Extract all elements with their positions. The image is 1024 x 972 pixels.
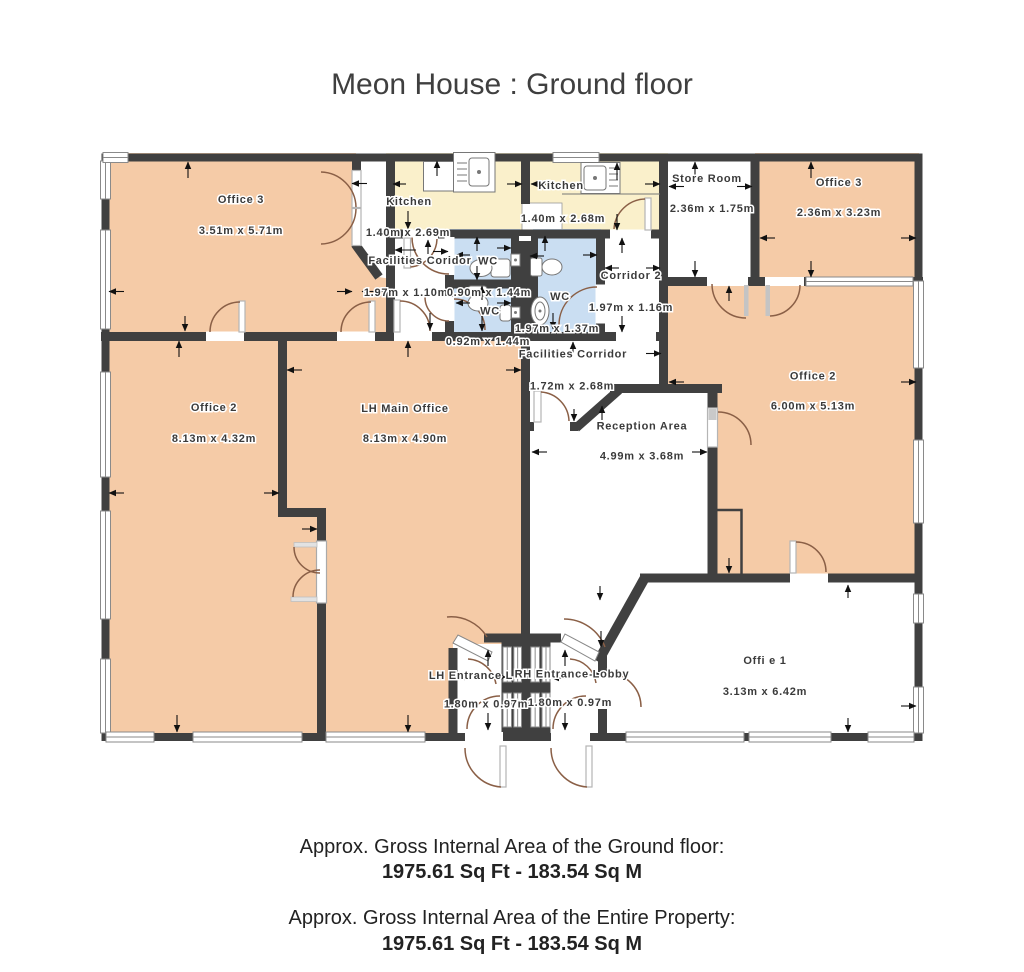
- svg-text:Kitchen: Kitchen: [386, 196, 432, 208]
- svg-text:WC: WC: [478, 256, 498, 268]
- svg-text:1.97m x 1.37m: 1.97m x 1.37m: [515, 323, 599, 335]
- svg-text:8.13m x 4.32m: 8.13m x 4.32m: [172, 433, 256, 445]
- svg-text:WC: WC: [550, 291, 570, 303]
- svg-text:1.40m x 2.69m: 1.40m x 2.69m: [366, 227, 450, 239]
- svg-text:Store Room: Store Room: [672, 173, 742, 185]
- svg-text:1975.61 Sq Ft - 183.54 Sq M: 1975.61 Sq Ft - 183.54 Sq M: [382, 933, 642, 955]
- svg-text:WC: WC: [480, 306, 500, 318]
- svg-text:3.13m x 6.42m: 3.13m x 6.42m: [723, 686, 807, 698]
- svg-text:0.90m x 1.44m: 0.90m x 1.44m: [447, 287, 531, 299]
- svg-text:Facilities Coridor: Facilities Coridor: [368, 255, 471, 267]
- svg-text:Meon House : Ground floor: Meon House : Ground floor: [331, 68, 693, 101]
- svg-text:1.80m x 0.97m: 1.80m x 0.97m: [528, 697, 612, 709]
- svg-text:1.72m x 2.68m: 1.72m x 2.68m: [530, 381, 614, 393]
- svg-text:1.40m x 2.68m: 1.40m x 2.68m: [521, 213, 605, 225]
- svg-text:Offi e 1: Offi e 1: [743, 655, 786, 667]
- svg-text:Approx. Gross Internal Area of: Approx. Gross Internal Area of the Entir…: [289, 907, 736, 929]
- svg-text:2.36m x 1.75m: 2.36m x 1.75m: [670, 203, 754, 215]
- svg-text:4.99m x 3.68m: 4.99m x 3.68m: [600, 451, 684, 463]
- svg-text:2.36m x 3.23m: 2.36m x 3.23m: [797, 207, 881, 219]
- svg-text:3.51m x 5.71m: 3.51m x 5.71m: [199, 225, 283, 237]
- svg-text:Reception Area: Reception Area: [597, 421, 688, 433]
- svg-text:Office 3: Office 3: [218, 194, 264, 206]
- svg-text:Corridor 2: Corridor 2: [601, 270, 662, 282]
- svg-text:Facilities Corridor: Facilities Corridor: [519, 349, 627, 361]
- svg-text:Kitchen: Kitchen: [538, 180, 584, 192]
- svg-text:1.80m x 0.97m: 1.80m x 0.97m: [444, 699, 528, 711]
- svg-text:RH Entrance Lobby: RH Entrance Lobby: [515, 669, 630, 681]
- svg-text:Office 2: Office 2: [191, 402, 237, 414]
- svg-text:0.92m x 1.44m: 0.92m x 1.44m: [446, 336, 530, 348]
- svg-text:LH Main Office: LH Main Office: [361, 403, 449, 415]
- svg-text:6.00m x 5.13m: 6.00m x 5.13m: [771, 401, 855, 413]
- svg-text:1975.61 Sq Ft - 183.54 Sq M: 1975.61 Sq Ft - 183.54 Sq M: [382, 861, 642, 883]
- svg-text:LH Entrance L: LH Entrance L: [429, 670, 513, 682]
- svg-text:1.97m x 1.10m: 1.97m x 1.10m: [364, 287, 448, 299]
- svg-text:Office 3: Office 3: [816, 177, 862, 189]
- svg-text:Approx. Gross Internal Area of: Approx. Gross Internal Area of the Groun…: [300, 836, 725, 858]
- svg-text:8.13m x 4.90m: 8.13m x 4.90m: [363, 433, 447, 445]
- svg-text:Office 2: Office 2: [790, 371, 836, 383]
- svg-text:1.97m x 1.16m: 1.97m x 1.16m: [589, 302, 673, 314]
